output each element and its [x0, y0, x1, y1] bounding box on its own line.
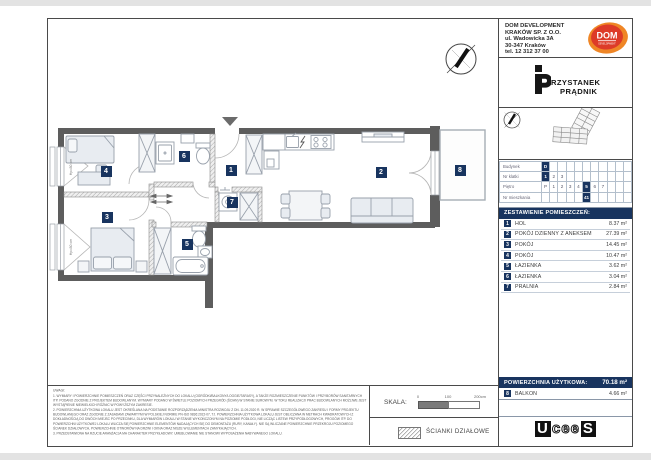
- room-name: POKÓJ DZIENNY Z ANEKSEM: [515, 231, 606, 237]
- unit-info-cell: [566, 193, 574, 203]
- room-area: 10.47 m²: [606, 253, 627, 259]
- unit-info-cell: [574, 193, 582, 203]
- room-row: 5ŁAZIENKA3.62 m²: [501, 261, 630, 272]
- balcony-area: 4.66 m²: [609, 391, 627, 397]
- unit-info-cell: 41: [582, 193, 590, 203]
- dom-development-logo: DOM DEVELOPMENT: [587, 21, 629, 56]
- rooms-list: 1HOL8.37 m²2POKÓJ DZIENNY Z ANEKSEM27.39…: [499, 219, 632, 293]
- room-name: PRALNIA: [515, 284, 609, 290]
- plan-sheet: 12345678Hp=80 cmHp=80 cm UWAGI: 1. WYMIA…: [0, 6, 651, 453]
- ucees-logo: UceeS: [499, 420, 632, 437]
- unit-info-row-label: Nr mieszkania: [499, 193, 541, 203]
- unit-info-row-label: Piętro: [499, 182, 541, 192]
- room-area: 8.37 m²: [609, 221, 627, 227]
- notes-list: 1. WYMIARY I POWIERZCHNIE POMIESZCZEŃ OR…: [53, 394, 368, 436]
- room-number-badge: 2: [504, 231, 511, 238]
- unit-info-cell: 3: [566, 182, 574, 192]
- unit-info-cell: [607, 182, 615, 192]
- unit-info-cell: [607, 193, 615, 203]
- unit-info-cell: [623, 162, 631, 171]
- usable-area-bar: POWIERZCHNIA UŻYTKOWA: 70.18 m²: [499, 377, 632, 388]
- room-name: ŁAZIENKA: [515, 274, 609, 280]
- unit-info-cell: 7: [598, 182, 606, 192]
- unit-info-table: BudynekDNr klatki123PiętroP1234567Nr mie…: [499, 161, 632, 203]
- unit-info-row-label: Nr klatki: [499, 172, 541, 182]
- room-area: 3.62 m²: [609, 263, 627, 269]
- unit-info-cell: [590, 162, 598, 171]
- unit-info-cell: [574, 162, 582, 171]
- note-item: 2. POWIERZCHNIA UŻYTKOWA LOKALU JEST OKR…: [53, 408, 368, 431]
- scale-tick: 100: [435, 394, 461, 399]
- balcony-row: 8 BALKON 4.66 m²: [499, 388, 632, 400]
- unit-info-cell: [615, 193, 623, 203]
- unit-info-cell: [590, 172, 598, 182]
- balcony-name: BALKON: [515, 391, 609, 397]
- svg-text:DOM: DOM: [597, 31, 618, 41]
- unit-info-cell: 4: [574, 182, 582, 192]
- unit-info-row-label: Budynek: [499, 162, 541, 171]
- unit-info-cell: [557, 193, 565, 203]
- usable-area-label: POWIERZCHNIA UŻYTKOWA:: [504, 380, 602, 386]
- room-badge-7: 7: [227, 197, 238, 208]
- room-area: 14.45 m²: [606, 242, 627, 248]
- unit-info-cell: [582, 162, 590, 171]
- site-locator-box: [499, 108, 632, 160]
- unit-info-cell: [566, 172, 574, 182]
- unit-info-cell: [623, 172, 631, 182]
- unit-info-cell: [566, 162, 574, 171]
- usable-area-value: 70.18 m²: [602, 379, 627, 386]
- rooms-box: ZESTAWIENIE POMIESZCZEŃ: 1HOL8.37 m²2POK…: [499, 207, 632, 377]
- room-badge-8: 8: [455, 165, 466, 176]
- room-row: 1HOL8.37 m²: [501, 219, 630, 230]
- sheet-frame: 12345678Hp=80 cmHp=80 cm UWAGI: 1. WYMIA…: [47, 18, 633, 447]
- diagonal-hatch-swatch-icon: [398, 427, 421, 439]
- unit-info-cell: [541, 193, 549, 203]
- room-badge-5: 5: [182, 239, 193, 250]
- unit-info-row: Nr klatki123: [499, 172, 632, 183]
- unit-info-cell: [598, 193, 606, 203]
- balcony-badge: 8: [504, 390, 511, 397]
- unit-info-cell: [615, 172, 623, 182]
- scale-bar-empty: [448, 401, 480, 409]
- room-badge-3: 3: [102, 212, 113, 223]
- room-name: HOL: [515, 221, 609, 227]
- unit-info-cell: [582, 172, 590, 182]
- legend-label: ŚCIANKI DZIAŁOWE: [426, 428, 490, 435]
- unit-info-cell: 2: [549, 172, 557, 182]
- unit-info-cell: D: [541, 162, 549, 171]
- room-row: 6ŁAZIENKA3.04 m²: [501, 272, 630, 283]
- unit-info-cell: [549, 162, 557, 171]
- divider: [499, 416, 632, 417]
- room-badge-6: 6: [179, 151, 190, 162]
- unit-info-cell: [574, 172, 582, 182]
- unit-info-cell: 5: [582, 182, 590, 192]
- window-height-label: Hp=80 cm: [69, 159, 73, 175]
- unit-info-cell: [607, 172, 615, 182]
- unit-info-cell: [623, 182, 631, 192]
- unit-info-cell: 6: [590, 182, 598, 192]
- room-number-badge: 1: [504, 220, 511, 227]
- room-badge-2: 2: [376, 167, 387, 178]
- room-number-badge: 4: [504, 252, 511, 259]
- unit-info-cell: [598, 172, 606, 182]
- notes-box: UWAGI: 1. WYMIARY I POWIERZCHNIE POMIESZ…: [48, 385, 370, 445]
- room-name: ŁAZIENKA: [515, 263, 609, 269]
- unit-info-cell: [557, 162, 565, 171]
- room-area: 27.39 m²: [606, 231, 627, 237]
- unit-info-cell: [598, 162, 606, 171]
- unit-info-cell: 1: [541, 172, 549, 182]
- note-item: 1. WYMIARY I POWIERZCHNIE POMIESZCZEŃ OR…: [53, 394, 368, 408]
- company-address: DOM DEVELOPMENT KRAKÓW SP. Z O.O. ul. Wa…: [505, 23, 564, 56]
- room-number-badge: 6: [504, 273, 511, 280]
- room-name: POKÓJ: [515, 242, 606, 248]
- room-row: 2POKÓJ DZIENNY Z ANEKSEM27.39 m²: [501, 230, 630, 241]
- scale-tick: 0: [405, 394, 431, 399]
- unit-info-cell: 1: [549, 182, 557, 192]
- scale-bar-filled: [418, 401, 450, 409]
- unit-info-row: Nr mieszkania41: [499, 193, 632, 204]
- rooms-title: ZESTAWIENIE POMIESZCZEŃ:: [499, 208, 632, 219]
- scale-tick: 200cm: [467, 394, 493, 399]
- unit-info-row: BudynekD: [499, 161, 632, 172]
- plan-badges: 12345678Hp=80 cmHp=80 cm: [48, 19, 498, 385]
- unit-info-cell: [623, 193, 631, 203]
- svg-text:DEVELOPMENT: DEVELOPMENT: [598, 44, 616, 46]
- room-name: POKÓJ: [515, 253, 606, 259]
- room-badge-1: 1: [226, 165, 237, 176]
- note-item: 3. PRZEDSTAWIONA NA RZUCIE ARANŻACJA MA …: [53, 431, 368, 436]
- building-site-plan: [547, 108, 602, 156]
- unit-info-cell: [549, 193, 557, 203]
- logo-p-icon: [535, 65, 551, 95]
- site-map: [499, 108, 632, 159]
- unit-info-cell: 2: [557, 182, 565, 192]
- window-height-label: Hp=80 cm: [69, 239, 73, 255]
- unit-info-cell: 3: [557, 172, 565, 182]
- room-row: 7PRALNIA2.84 m²: [501, 283, 630, 294]
- unit-info-cell: [615, 162, 623, 171]
- unit-info-cell: [615, 182, 623, 192]
- project-logo-box: RZYSTANEK PRĄDNIK: [499, 58, 632, 108]
- company-address-box: DOM DEVELOPMENT KRAKÓW SP. Z O.O. ul. Wa…: [499, 19, 632, 58]
- scale-label: SKALA:: [384, 399, 407, 406]
- unit-info-row: PiętroP1234567: [499, 182, 632, 193]
- room-area: 3.04 m²: [609, 274, 627, 280]
- room-number-badge: 5: [504, 263, 511, 270]
- notes-title: UWAGI:: [53, 389, 368, 393]
- przystanek-pradnik-logo: RZYSTANEK PRĄDNIK: [535, 65, 615, 101]
- room-number-badge: 7: [504, 284, 511, 291]
- room-row: 3POKÓJ14.45 m²: [501, 240, 630, 251]
- room-row: 4POKÓJ10.47 m²: [501, 251, 630, 262]
- unit-info-cell: P: [541, 182, 549, 192]
- unit-info-cell: [607, 162, 615, 171]
- room-number-badge: 3: [504, 241, 511, 248]
- compass-small-icon: [504, 112, 520, 128]
- room-area: 2.84 m²: [609, 284, 627, 290]
- info-panel: DOM DEVELOPMENT KRAKÓW SP. Z O.O. ul. Wa…: [498, 19, 632, 446]
- room-badge-4: 4: [101, 166, 112, 177]
- unit-info-cell: [590, 193, 598, 203]
